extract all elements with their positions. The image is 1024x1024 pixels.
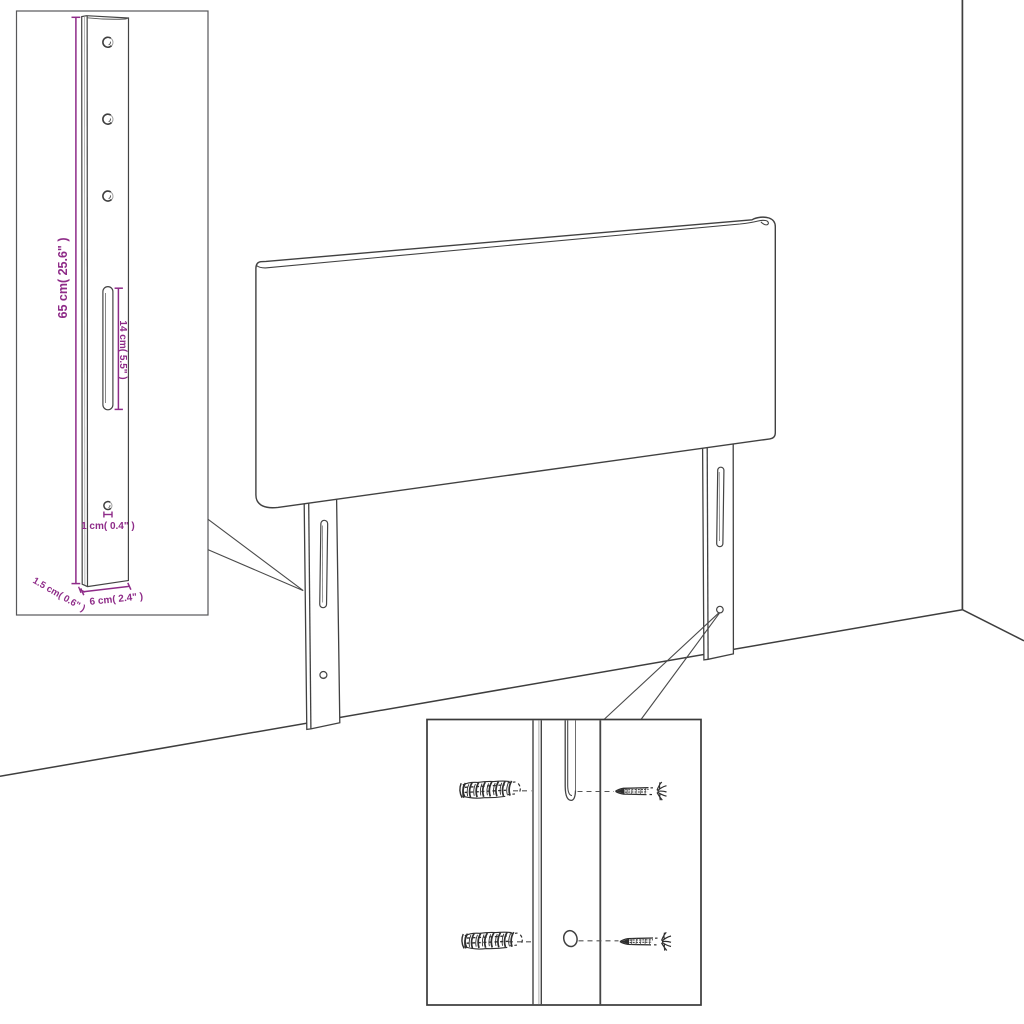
svg-text:1 cm( 0.4" ): 1 cm( 0.4" ) <box>81 521 135 532</box>
svg-text:65 cm( 25.6" ): 65 cm( 25.6" ) <box>56 238 70 319</box>
svg-text:14 cm( 5.5" ): 14 cm( 5.5" ) <box>117 320 128 379</box>
